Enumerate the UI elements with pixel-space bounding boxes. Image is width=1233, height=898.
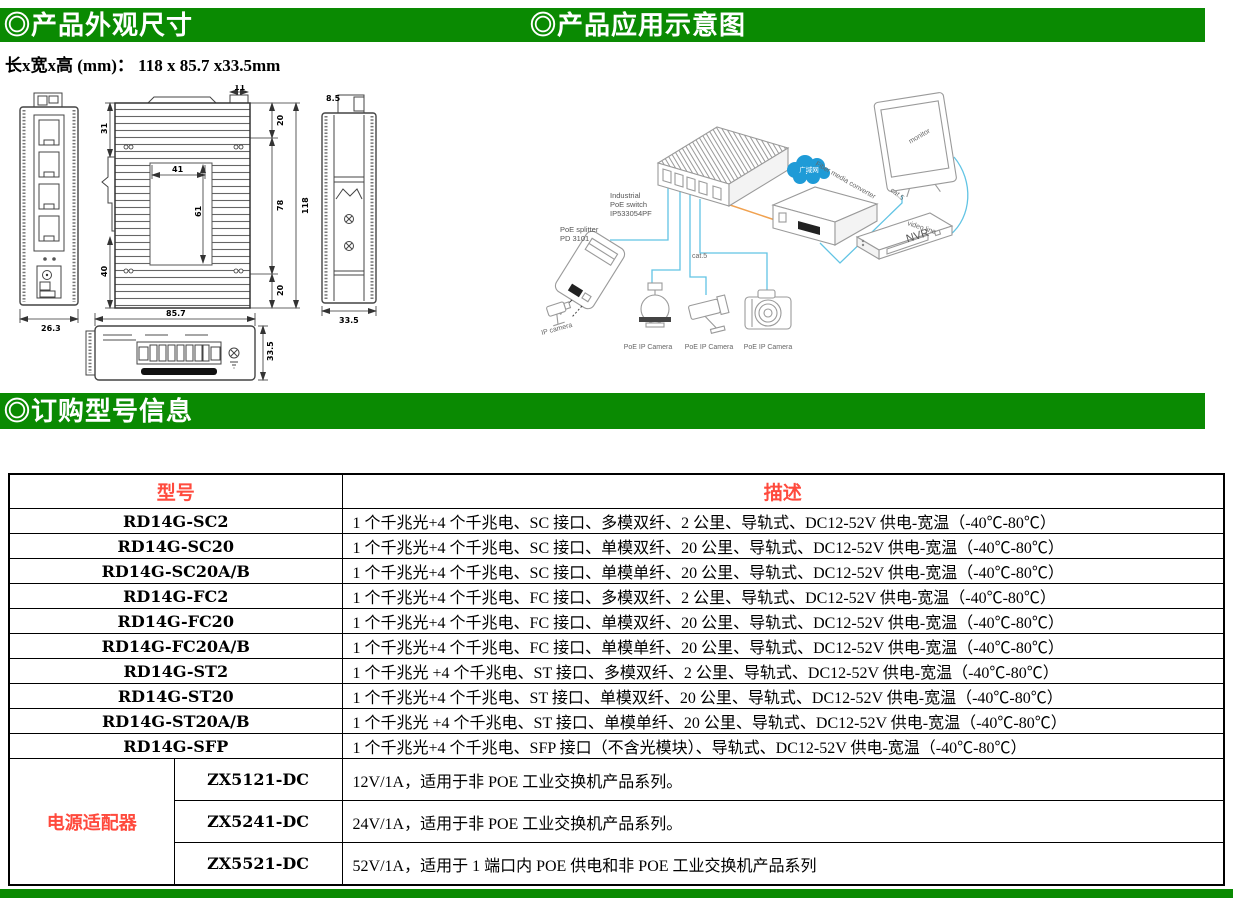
description-cell: 52V/1A，适用于 1 端口内 POE 供电和非 POE 工业交换机产品系列 [342, 843, 1224, 886]
description-cell: 1 个千兆光 +4 个千兆电、ST 接口、多模双纤、2 公里、导轨式、DC12-… [342, 659, 1224, 684]
power-adapter-row: ZX5241-DC 24V/1A，适用于非 POE 工业交换机产品系列。 [9, 801, 1224, 843]
poe-camera-label-2: PoE IP Camera [685, 344, 734, 351]
splitter-label-line1: PoE splitter [560, 225, 599, 234]
dim-bottom-height: 33.5 [266, 341, 275, 361]
table-row: RD14G-ST20A/B 1 个千兆光 +4 个千兆电、ST 接口、单模单纤、… [9, 709, 1224, 734]
description-cell: 1 个千兆光 +4 个千兆电、ST 接口、单模单纤、20 公里、导轨式、DC12… [342, 709, 1224, 734]
model-cell: RD14G-ST2 [9, 659, 342, 684]
main-view-drawing: 11 41 61 31 40 [100, 85, 310, 308]
model-cell: RD14G-SFP [9, 734, 342, 759]
model-cell: ZX5121-DC [174, 759, 342, 801]
description-cell: 12V/1A，适用于非 POE 工业交换机产品系列。 [342, 759, 1224, 801]
dslr-camera-drawing [745, 290, 791, 329]
size-spec-label: 长x宽x高 (mm)： 118 x 85.7 x33.5mm [5, 51, 280, 76]
table-row: RD14G-SC20 1 个千兆光+4 个千兆电、SC 接口、单模双纤、20 公… [9, 534, 1224, 559]
poe-camera-label-1: PoE IP Camera [624, 344, 673, 351]
bottom-view-drawing: 85.7 [86, 309, 275, 380]
model-cell: ZX5521-DC [174, 843, 342, 886]
section-title-application: ◎产品应用示意图 [530, 8, 746, 42]
model-cell: RD14G-SC20A/B [9, 559, 342, 584]
description-cell: 1 个千兆光+4 个千兆电、SC 接口、多模双纤、2 公里、导轨式、DC12-5… [342, 509, 1224, 534]
bullet-camera-drawing [688, 295, 733, 337]
terminal-block [137, 342, 221, 375]
dim-main-left-top: 31 [100, 122, 109, 134]
dim-main-top-tab: 11 [234, 85, 246, 92]
splitter-label-line2: PD 3101 [560, 234, 589, 243]
description-cell: 1 个千兆光+4 个千兆电、FC 接口、多模双纤、2 公里、导轨式、DC12-5… [342, 584, 1224, 609]
description-cell: 1 个千兆光+4 个千兆电、FC 接口、单模单纤、20 公里、导轨式、DC12-… [342, 634, 1224, 659]
model-cell: RD14G-FC2 [9, 584, 342, 609]
model-cell: RD14G-SC20 [9, 534, 342, 559]
terminal-bar [141, 368, 217, 375]
ordering-table: 型号 描述 RD14G-SC2 1 个千兆光+4 个千兆电、SC 接口、多模双纤… [8, 473, 1225, 886]
section-title-ordering: ◎订购型号信息 [4, 393, 193, 429]
ordering-header-bar: ◎订购型号信息 [0, 393, 1205, 429]
table-row: RD14G-SC20A/B 1 个千兆光+4 个千兆电、SC 接口、单模单纤、2… [9, 559, 1224, 584]
description-cell: 1 个千兆光+4 个千兆电、SC 接口、单模单纤、20 公里、导轨式、DC12-… [342, 559, 1224, 584]
datasheet-page: ◎产品外观尺寸 ◎产品应用示意图 长x宽x高 (mm)： 118 x 85.7 … [0, 0, 1233, 898]
led-dot [52, 257, 56, 261]
dim-main-right-mid: 78 [276, 199, 285, 211]
description-cell: 1 个千兆光+4 个千兆电、SC 接口、单模双纤、20 公里、导轨式、DC12-… [342, 534, 1224, 559]
cat5-center-label: cat.5 [692, 253, 707, 260]
dimension-drawings: 26.3 11 41 61 [0, 85, 525, 397]
switch-label-line1: Industrial [610, 191, 641, 200]
description-cell: 1 个千兆光+4 个千兆电、FC 接口、单模双纤、20 公里、导轨式、DC12-… [342, 609, 1224, 634]
dim-bottom-width: 85.7 [166, 309, 186, 318]
description-cell: 24V/1A，适用于非 POE 工业交换机产品系列。 [342, 801, 1224, 843]
switch-label-line3: IP533054PF [610, 209, 652, 218]
dim-main-total-height: 118 [301, 197, 310, 214]
model-cell: RD14G-ST20A/B [9, 709, 342, 734]
table-row: RD14G-FC20A/B 1 个千兆光+4 个千兆电、FC 接口、单模单纤、2… [9, 634, 1224, 659]
description-cell: 1 个千兆光+4 个千兆电、SFP 接口（不含光模块）、导轨式、DC12-52V… [342, 734, 1224, 759]
power-adapter-group-label: 电源适配器 [9, 759, 174, 886]
dim-main-left-bottom: 40 [100, 265, 109, 277]
table-row: RD14G-ST20 1 个千兆光+4 个千兆电、ST 接口、单模双纤、20 公… [9, 684, 1224, 709]
din-clip [102, 157, 115, 231]
fiber-port [37, 266, 61, 298]
top-section-header-bar: ◎产品外观尺寸 ◎产品应用示意图 [0, 8, 1205, 42]
switch-label-line2: PoE switch [610, 200, 647, 209]
led-dot [43, 257, 47, 261]
dome-camera-drawing [639, 283, 671, 327]
description-cell: 1 个千兆光+4 个千兆电、ST 接口、单模双纤、20 公里、导轨式、DC12-… [342, 684, 1224, 709]
dim-side-top: 8.5 [326, 94, 341, 103]
dim-side-bottom: 33.5 [339, 316, 359, 325]
power-adapter-row: 电源适配器 ZX5121-DC 12V/1A，适用于非 POE 工业交换机产品系… [9, 759, 1224, 801]
table-row: RD14G-FC2 1 个千兆光+4 个千兆电、FC 接口、多模双纤、2 公里、… [9, 584, 1224, 609]
table-row: RD14G-ST2 1 个千兆光 +4 个千兆电、ST 接口、多模双纤、2 公里… [9, 659, 1224, 684]
model-cell: RD14G-FC20A/B [9, 634, 342, 659]
table-row: RD14G-FC20 1 个千兆光+4 个千兆电、FC 接口、单模双纤、20 公… [9, 609, 1224, 634]
bottom-green-strip [0, 889, 1233, 898]
model-cell: RD14G-ST20 [9, 684, 342, 709]
application-diagram: Industrial PoE switch IP533054PF 广域网 Fib… [530, 85, 1005, 385]
dim-front-width: 26.3 [41, 324, 61, 333]
monitor-drawing [874, 92, 958, 200]
poe-camera-label-3: PoE IP Camera [744, 344, 793, 351]
dim-main-inner-height: 61 [194, 205, 203, 217]
model-cell: ZX5241-DC [174, 801, 342, 843]
dim-main-right-bottom: 20 [276, 284, 285, 296]
model-cell: RD14G-SC2 [9, 509, 342, 534]
model-cell: RD14G-FC20 [9, 609, 342, 634]
column-header-description: 描述 [342, 474, 1224, 509]
poe-switch-drawing [658, 127, 788, 206]
power-adapter-row: ZX5521-DC 52V/1A，适用于 1 端口内 POE 供电和非 POE … [9, 843, 1224, 886]
dim-main-right-top: 20 [276, 114, 285, 126]
table-header-row: 型号 描述 [9, 474, 1224, 509]
table-row: RD14G-SC2 1 个千兆光+4 个千兆电、SC 接口、多模双纤、2 公里、… [9, 509, 1224, 534]
side-view-drawing: 8.5 33.5 [322, 94, 376, 325]
front-view-drawing: 26.3 [20, 93, 78, 333]
column-header-model: 型号 [9, 474, 342, 509]
table-row: RD14G-SFP 1 个千兆光+4 个千兆电、SFP 接口（不含光模块）、导轨… [9, 734, 1224, 759]
section-title-appearance: ◎产品外观尺寸 [4, 8, 193, 42]
dim-main-inner-width: 41 [172, 165, 184, 174]
